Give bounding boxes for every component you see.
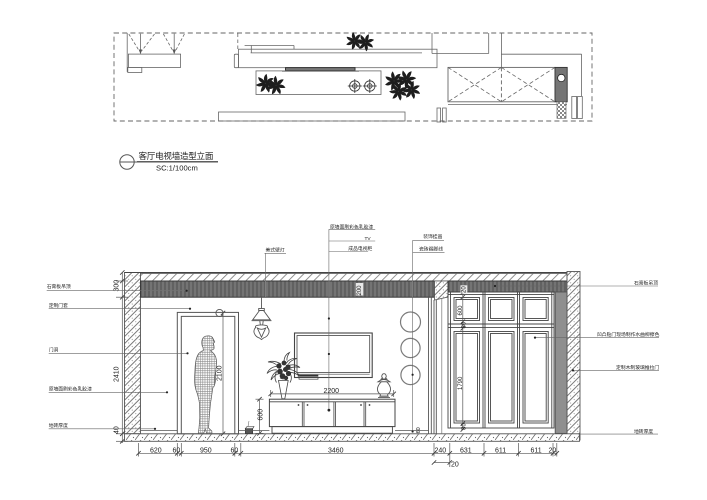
svg-text:611: 611 [495, 447, 506, 454]
svg-text:950: 950 [200, 447, 212, 454]
svg-text:3460: 3460 [328, 447, 344, 454]
svg-text:SC:1/100cm: SC:1/100cm [156, 164, 198, 173]
svg-text:瓷砖踢脚线: 瓷砖踢脚线 [419, 246, 443, 253]
svg-text:60: 60 [231, 447, 239, 454]
svg-text:门洞: 门洞 [49, 347, 59, 354]
svg-text:40: 40 [113, 426, 120, 434]
svg-text:600: 600 [257, 409, 264, 421]
svg-text:美式壁灯: 美式壁灯 [266, 247, 285, 254]
svg-text:20: 20 [549, 447, 557, 454]
svg-text:600: 600 [458, 305, 464, 316]
svg-text:631: 631 [460, 447, 472, 454]
svg-text:2410: 2410 [113, 366, 120, 382]
svg-text:2100: 2100 [217, 365, 224, 381]
svg-text:客厅电视墙造型立面: 客厅电视墙造型立面 [139, 150, 214, 161]
svg-text:石膏板吊顶: 石膏板吊顶 [634, 279, 658, 286]
svg-text:20: 20 [451, 462, 459, 469]
svg-text:成品电视柜: 成品电视柜 [348, 245, 372, 252]
svg-text:300: 300 [113, 280, 120, 292]
svg-text:凹凸贴门现场制作水曲柳擦色: 凹凸贴门现场制作水曲柳擦色 [597, 331, 660, 338]
svg-text:石膏板吊顶: 石膏板吊顶 [47, 283, 71, 290]
svg-text:地砖厚度: 地砖厚度 [634, 428, 653, 435]
svg-text:200: 200 [357, 285, 363, 296]
svg-text:240: 240 [435, 447, 447, 454]
svg-text:装饰挂画: 装饰挂画 [423, 233, 442, 240]
svg-text:20: 20 [462, 286, 468, 293]
svg-text:80: 80 [462, 321, 468, 328]
svg-text:1790: 1790 [458, 376, 464, 390]
svg-text:80: 80 [462, 423, 468, 430]
svg-text:60: 60 [416, 427, 422, 433]
svg-text:60: 60 [173, 447, 181, 454]
svg-text:620: 620 [150, 447, 162, 454]
svg-text:611: 611 [531, 447, 542, 454]
svg-text:原墙面刷彩色乳胶漆: 原墙面刷彩色乳胶漆 [49, 386, 92, 393]
svg-text:地砖厚度: 地砖厚度 [49, 422, 68, 429]
svg-text:定制木制玻璃推拉门: 定制木制玻璃推拉门 [616, 364, 659, 371]
svg-text:定制门套: 定制门套 [49, 302, 68, 309]
svg-text:2200: 2200 [324, 388, 340, 395]
